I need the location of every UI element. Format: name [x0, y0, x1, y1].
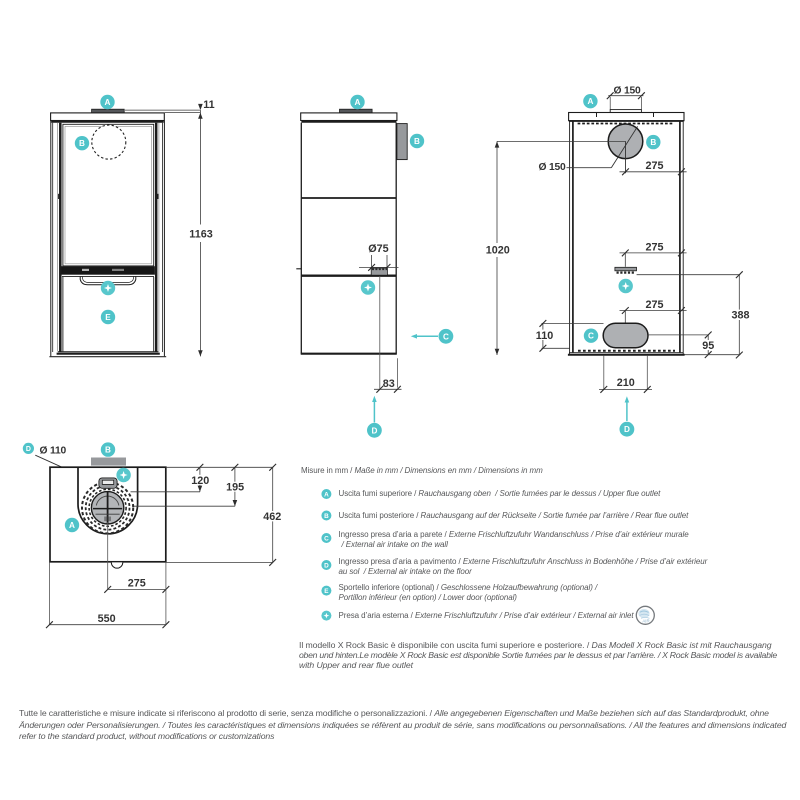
svg-text:83: 83: [383, 378, 395, 390]
svg-text:Ø 150: Ø 150: [538, 162, 566, 173]
svg-text:A: A: [324, 491, 329, 498]
svg-text:B: B: [414, 137, 420, 146]
svg-text:C: C: [324, 535, 329, 542]
svg-text:A: A: [69, 521, 75, 530]
svg-text:275: 275: [645, 160, 663, 172]
svg-text:Ø75: Ø75: [368, 243, 388, 255]
svg-text:388: 388: [731, 310, 749, 322]
svg-text:E: E: [105, 313, 111, 322]
svg-text:110: 110: [536, 330, 553, 342]
svg-text:A: A: [355, 98, 361, 107]
svg-text:Ø 110: Ø 110: [40, 446, 67, 457]
svg-text:275: 275: [645, 241, 663, 253]
svg-text:95: 95: [702, 340, 714, 352]
svg-text:275: 275: [645, 299, 663, 311]
svg-text:11: 11: [203, 99, 214, 111]
svg-text:B: B: [324, 513, 329, 520]
svg-text:D: D: [624, 425, 630, 434]
svg-text:C: C: [588, 332, 594, 341]
svg-text:462: 462: [263, 511, 281, 523]
svg-text:C: C: [443, 332, 449, 341]
svg-text:D: D: [26, 446, 31, 453]
svg-text:1020: 1020: [486, 245, 510, 257]
svg-text:A: A: [587, 97, 593, 106]
svg-text:1163: 1163: [189, 228, 212, 240]
svg-text:120: 120: [191, 475, 209, 487]
svg-text:A: A: [105, 98, 111, 107]
svg-text:195: 195: [226, 482, 244, 494]
svg-text:D: D: [371, 426, 377, 435]
svg-text:AIR: AIR: [642, 619, 649, 624]
svg-text:E: E: [324, 588, 329, 595]
svg-text:D: D: [324, 562, 329, 569]
svg-text:550: 550: [98, 613, 116, 625]
svg-text:210: 210: [617, 377, 635, 389]
svg-text:B: B: [79, 139, 85, 148]
svg-text:275: 275: [128, 578, 146, 590]
svg-text:Ø 150: Ø 150: [613, 85, 641, 96]
svg-text:B: B: [105, 446, 111, 455]
svg-text:B: B: [650, 138, 656, 147]
